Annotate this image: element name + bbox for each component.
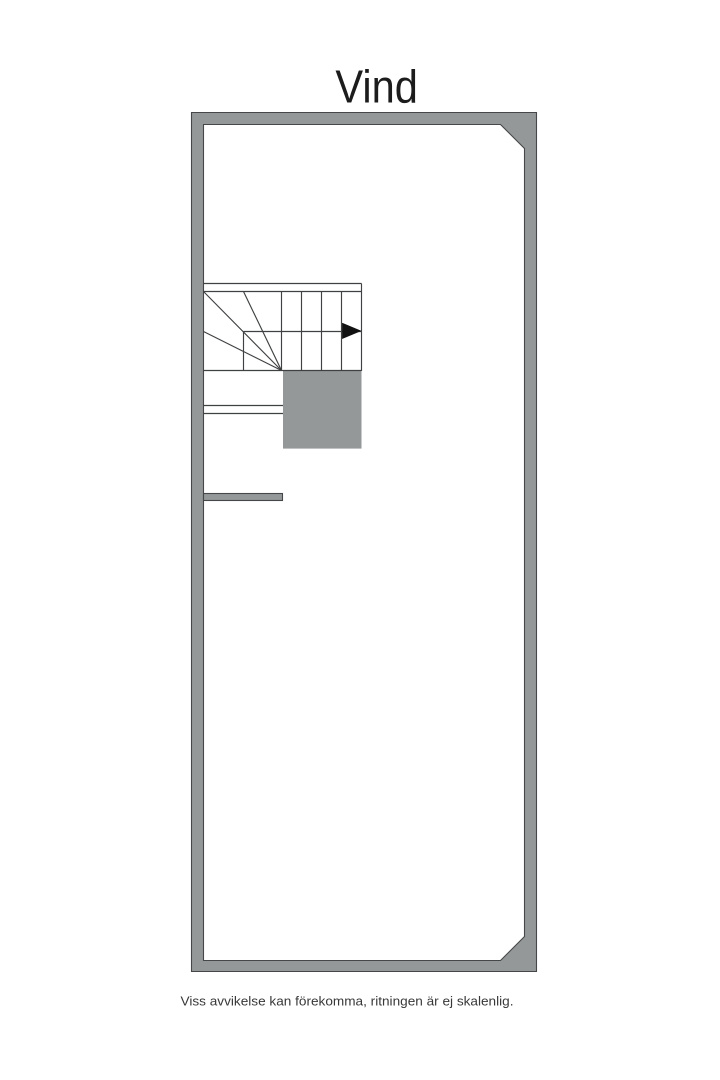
svg-text:Viss avvikelse kan förekomma,: Viss avvikelse kan förekomma, ritningen … <box>181 993 514 1008</box>
svg-text:Vind: Vind <box>335 60 418 112</box>
